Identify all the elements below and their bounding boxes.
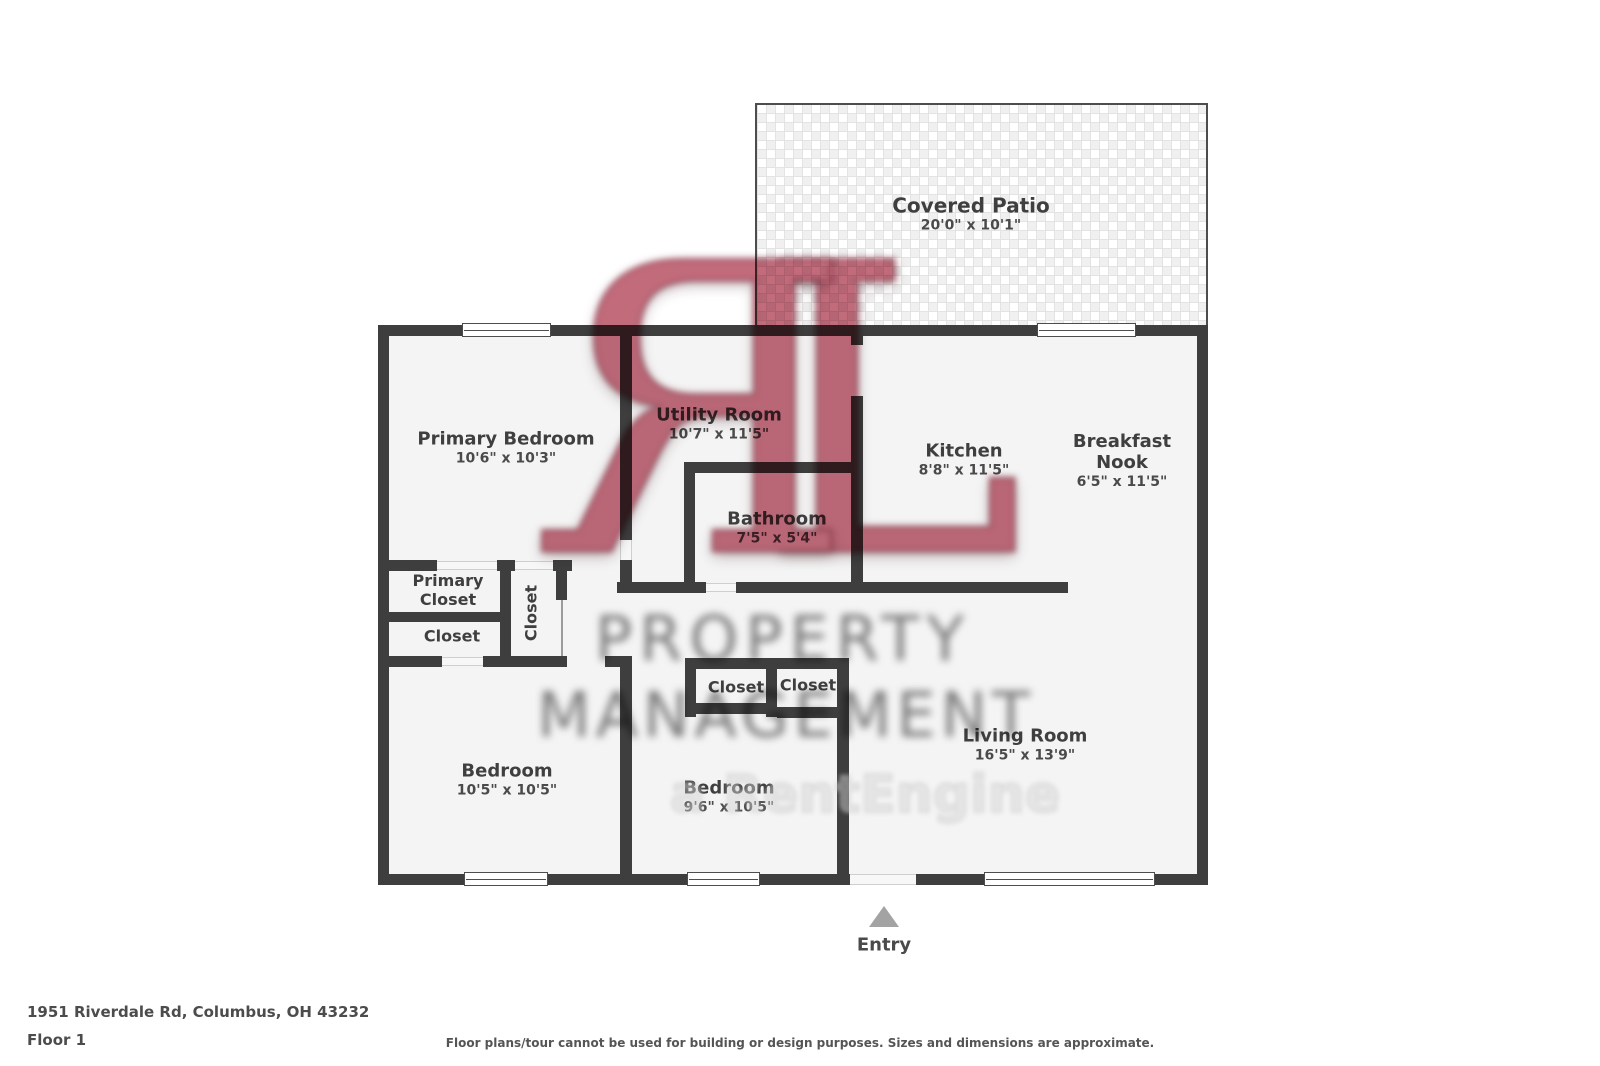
entry-label: Entry xyxy=(857,935,911,956)
label-closet-hall-vertical: Closet xyxy=(522,585,541,641)
window-living-room xyxy=(984,872,1155,886)
window-primary-bedroom xyxy=(462,323,551,337)
room-name: Closet xyxy=(424,627,480,646)
room-name: Primary Closet xyxy=(393,571,503,609)
door-bedroom-left xyxy=(442,657,483,666)
window-bedroom-middle xyxy=(687,872,760,886)
wall-bedroom-top-2 xyxy=(483,656,567,667)
entry-opening xyxy=(850,874,916,885)
wall-closet-top-2 xyxy=(497,560,515,571)
door-primary-closet xyxy=(437,561,497,570)
room-name: Closet xyxy=(522,585,541,641)
property-address: 1951 Riverdale Rd, Columbus, OH 43232 xyxy=(27,1003,369,1021)
wall-bedroom-top-1 xyxy=(378,656,442,667)
disclaimer-text: Floor plans/tour cannot be used for buil… xyxy=(0,1036,1600,1050)
label-closet-under-primary: Closet xyxy=(424,627,480,646)
door-hall-closet xyxy=(515,561,553,570)
room-name: Breakfast Nook xyxy=(1057,431,1187,473)
watermark-letter-r: R xyxy=(552,214,853,614)
wall-closet-top-1 xyxy=(389,560,437,571)
watermark-line-management: MANAGEMENT xyxy=(537,679,1035,752)
floorplan-canvas: Covered Patio 20'0" x 10'1" Primary Bedr… xyxy=(0,0,1600,1066)
watermark-rentengine: a RentEngine xyxy=(670,765,1060,825)
label-breakfast-nook: Breakfast Nook 6'5" x 11'5" xyxy=(1057,431,1187,491)
room-dims: 6'5" x 11'5" xyxy=(1057,473,1187,491)
label-bedroom-left: Bedroom 10'5" x 10'5" xyxy=(457,761,557,800)
wall-closet-divider xyxy=(389,612,511,622)
room-dims: 10'5" x 10'5" xyxy=(457,782,557,800)
wall-outer-right xyxy=(1197,325,1208,885)
entry-arrow-icon xyxy=(869,906,899,927)
window-patio-door xyxy=(1037,323,1136,337)
room-name: Bedroom xyxy=(457,761,557,782)
label-primary-closet: Primary Closet xyxy=(393,571,503,609)
watermark-line-property: PROPERTY xyxy=(595,603,971,676)
watermark-logo: RL xyxy=(552,214,1024,614)
wall-outer-left xyxy=(378,325,389,885)
window-bedroom-left xyxy=(464,872,548,886)
